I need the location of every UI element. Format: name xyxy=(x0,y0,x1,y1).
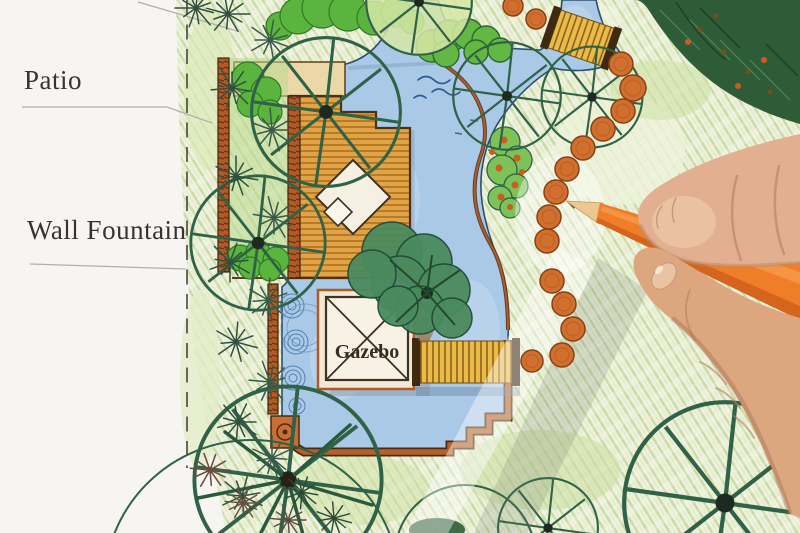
stepping-stone xyxy=(571,136,595,160)
stepping-stone xyxy=(537,205,561,229)
patio-label: Patio xyxy=(24,65,82,95)
garden-plan-drawing: Gazebo xyxy=(0,0,800,533)
stepping-stone xyxy=(611,99,635,123)
basin-dot xyxy=(283,430,288,435)
stepping-stone xyxy=(591,117,615,141)
stepping-stone xyxy=(526,9,546,29)
stepping-stone xyxy=(540,269,564,293)
stepping-stone xyxy=(535,229,559,253)
index-fingertip-highlight xyxy=(652,196,716,248)
stepping-stone xyxy=(609,52,633,76)
landscape-plan-photo: Gazebo xyxy=(0,0,800,533)
dock-end-beam xyxy=(412,338,420,386)
stepping-stone xyxy=(550,343,574,367)
stepping-stone xyxy=(552,292,576,316)
wall-fountain-wall xyxy=(268,284,278,414)
stepping-stone xyxy=(503,0,523,16)
stepping-stone xyxy=(561,317,585,341)
stepping-stone xyxy=(555,157,579,181)
wall-fountain-label: Wall Fountain xyxy=(27,215,187,245)
stepping-stone xyxy=(620,75,646,101)
stepping-stone xyxy=(521,350,543,372)
stepping-stone xyxy=(544,180,568,204)
gazebo-label: Gazebo xyxy=(335,341,399,363)
